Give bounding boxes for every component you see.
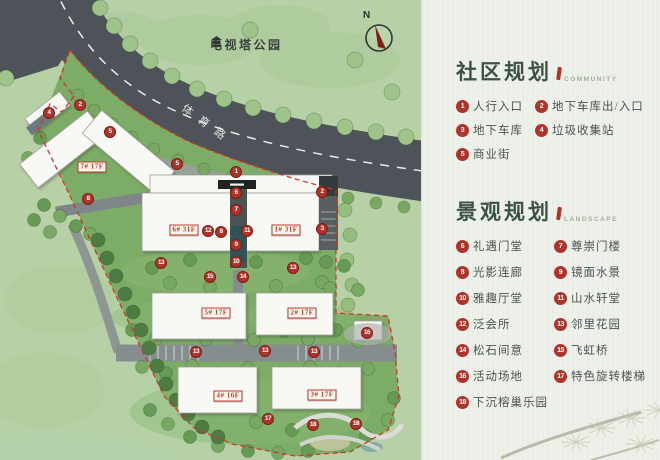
map-marker-3: 3 — [316, 223, 328, 235]
legend-item-label: 尊崇门楼 — [571, 238, 621, 254]
site-plan-poster: 7# 17F6# 31F1# 31F5# 17F2# 17F4# 16F3# 1… — [0, 0, 660, 460]
legend-item-number: 4 — [535, 124, 548, 137]
building-label: 4# 16F — [213, 391, 242, 402]
legend-item-label: 雅趣厅堂 — [473, 290, 523, 306]
legend-panel: 社区规划 COMMUNITY 1人行入口2地下车库出/入口3地下车库4垃圾收集站… — [421, 0, 660, 460]
legend-subtitle: LANDSCAPE — [564, 216, 618, 223]
park-label: 电视塔公园 — [210, 36, 283, 53]
legend-item-label: 商业街 — [473, 146, 511, 162]
legend-item: 5商业街 — [456, 146, 535, 162]
legend-item: 3地下车库 — [456, 122, 535, 138]
map-marker-13: 13 — [308, 346, 320, 358]
map-marker-9: 9 — [230, 239, 242, 251]
map-marker-12: 12 — [202, 225, 214, 237]
map-marker-13: 13 — [190, 346, 202, 358]
legend-item-label: 松石间意 — [473, 342, 523, 358]
building-label: 6# 31F — [169, 225, 198, 236]
map-marker-13: 13 — [287, 262, 299, 274]
legend-item-number: 11 — [554, 292, 567, 305]
building-label: 3# 17F — [307, 390, 336, 401]
legend-item: 7尊崇门楼 — [554, 238, 660, 254]
map-marker-13: 13 — [155, 257, 167, 269]
legend-item-number: 10 — [456, 292, 469, 305]
legend-title: 景观规划 LANDSCAPE — [456, 196, 660, 226]
legend-item: 2地下车库出/入口 — [535, 98, 660, 114]
legend-item-number: 12 — [456, 318, 469, 331]
legend-item-label: 山水轩堂 — [571, 290, 621, 306]
building-label: 7# 17F — [77, 162, 106, 173]
legend-subtitle: COMMUNITY — [564, 76, 618, 83]
legend-item-number: 5 — [456, 148, 469, 161]
red-tick-icon — [556, 207, 562, 220]
legend-item-label: 光影连廊 — [473, 264, 523, 280]
map-marker-13: 13 — [259, 345, 271, 357]
legend-item-label: 泛会所 — [473, 316, 511, 332]
legend-item-number: 13 — [554, 318, 567, 331]
building-label: 5# 17F — [201, 308, 230, 319]
legend-item-label: 镜面水景 — [571, 264, 621, 280]
compass-icon — [362, 22, 396, 56]
legend-item-number: 15 — [554, 344, 567, 357]
legend-title: 社区规划 COMMUNITY — [456, 56, 660, 86]
legend-item: 12泛会所 — [456, 316, 554, 332]
legend-item-label: 礼遇门堂 — [473, 238, 523, 254]
legend-item-number: 6 — [456, 240, 469, 253]
map-marker-17: 17 — [262, 413, 274, 425]
map-marker-15: 15 — [204, 271, 216, 283]
map-marker-10: 10 — [230, 256, 242, 268]
legend-item-number: 8 — [456, 266, 469, 279]
legend-item-number: 1 — [456, 100, 469, 113]
legend-item-label: 飞虹桥 — [571, 342, 609, 358]
legend-title-text: 社区规划 — [456, 56, 552, 86]
legend-item: 14松石间意 — [456, 342, 554, 358]
legend-item: 15飞虹桥 — [554, 342, 660, 358]
red-tick-icon — [556, 67, 562, 80]
legend-section-community: 社区规划 COMMUNITY 1人行入口2地下车库出/入口3地下车库4垃圾收集站… — [422, 56, 660, 162]
map-marker-4: 4 — [43, 107, 55, 119]
legend-item: 13邻里花园 — [554, 316, 660, 332]
map-marker-7: 7 — [230, 204, 242, 216]
building-label: 1# 31F — [271, 225, 300, 236]
legend-item: 10雅趣厅堂 — [456, 290, 554, 306]
legend-items: 1人行入口2地下车库出/入口3地下车库4垃圾收集站5商业街 — [456, 98, 660, 162]
map-marker-16: 16 — [361, 327, 373, 339]
map-marker-6: 6 — [230, 187, 242, 199]
pond — [0, 433, 175, 460]
legend-item: 11山水轩堂 — [554, 290, 660, 306]
legend-item-label: 邻里花园 — [571, 316, 621, 332]
legend-item-number: 7 — [554, 240, 567, 253]
legend-item-label: 垃圾收集站 — [552, 122, 615, 138]
legend-item-number: 16 — [456, 370, 469, 383]
map-marker-2: 2 — [74, 99, 86, 111]
map-marker-14: 14 — [237, 271, 249, 283]
legend-item: 6礼遇门堂 — [456, 238, 554, 254]
map-marker-1: 1 — [230, 166, 242, 178]
map-marker-5: 5 — [104, 126, 116, 138]
legend-item-number: 14 — [456, 344, 469, 357]
compass-north-letter: N — [363, 10, 370, 21]
legend-title-text: 景观规划 — [456, 196, 552, 226]
legend-item-number: 9 — [554, 266, 567, 279]
building-label: 2# 17F — [287, 308, 316, 319]
legend-item-label: 人行入口 — [473, 98, 523, 114]
legend-item-number: 18 — [456, 396, 469, 409]
map-marker-8: 8 — [82, 193, 94, 205]
map-marker-18: 18 — [307, 419, 319, 431]
legend-item-label: 地下车库出/入口 — [552, 98, 644, 114]
legend-item: 1人行入口 — [456, 98, 535, 114]
pine-branch-decoration — [481, 360, 660, 460]
compass: N — [355, 8, 401, 60]
legend-item-number: 2 — [535, 100, 548, 113]
map-marker-2: 2 — [316, 186, 328, 198]
pavilion-icon — [210, 36, 223, 47]
legend-item-label: 地下车库 — [473, 122, 523, 138]
legend-item: 9镜面水景 — [554, 264, 660, 280]
map-marker-18: 18 — [350, 418, 362, 430]
map-marker-11: 11 — [241, 225, 253, 237]
map-marker-5: 5 — [171, 158, 183, 170]
legend-item: 8光影连廊 — [456, 264, 554, 280]
map-marker-8: 8 — [215, 226, 227, 238]
legend-item: 4垃圾收集站 — [535, 122, 660, 138]
master-plan-map: 7# 17F6# 31F1# 31F5# 17F2# 17F4# 16F3# 1… — [0, 0, 421, 460]
legend-item-number: 3 — [456, 124, 469, 137]
